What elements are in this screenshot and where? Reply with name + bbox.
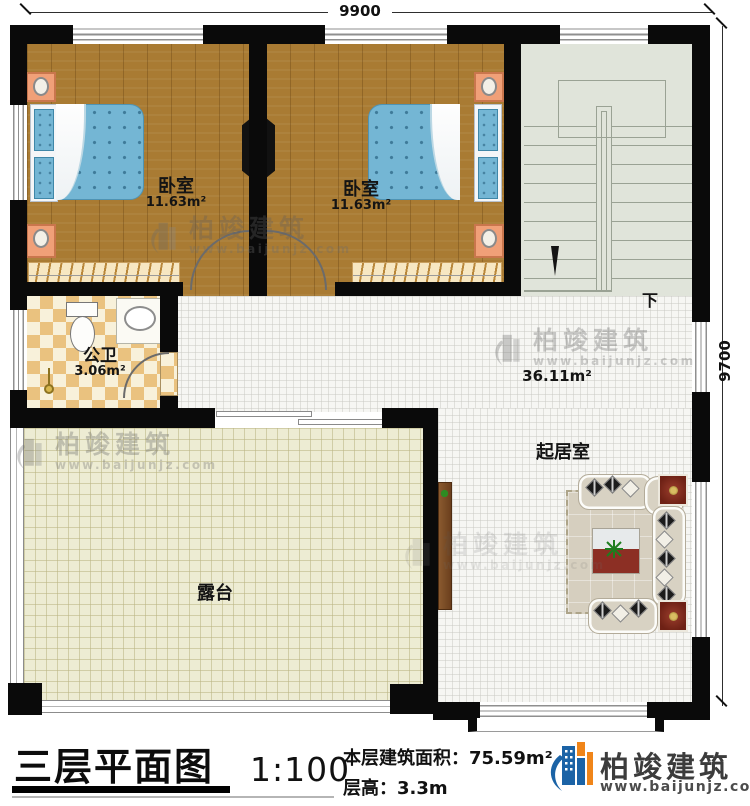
room-area-living: 36.11m² <box>517 368 597 385</box>
drawing-title: 三层平面图 <box>14 736 214 791</box>
terrace-railing-bottom <box>42 700 390 713</box>
terrace-corner-column <box>390 684 438 714</box>
room-area-bedroom-right: 11.63m² <box>325 199 397 214</box>
stair-bottom-edge <box>524 290 612 292</box>
sink-basin-icon <box>124 306 156 331</box>
plant-icon <box>604 539 624 559</box>
stair-steps-right <box>612 126 692 292</box>
title-underline-thin <box>12 796 334 798</box>
wall-terrace-right <box>423 428 438 686</box>
plant-icon <box>440 489 449 498</box>
right-dimension-label: 9700 <box>716 336 734 386</box>
bed-pillow <box>478 157 498 199</box>
stair-rail-inner <box>601 111 607 292</box>
lamp-icon <box>33 77 49 96</box>
window <box>10 310 27 390</box>
lamp-icon <box>33 229 49 248</box>
brand-logo-icon <box>546 740 596 794</box>
nightstand <box>474 72 504 102</box>
wall-terrace-top-right <box>382 408 438 428</box>
wall-between-bedrooms <box>249 44 267 296</box>
floor-drain-stem <box>48 368 50 385</box>
brand-website: www.baijunjz.com <box>600 779 750 795</box>
stair-steps-left <box>524 126 596 292</box>
side-table <box>658 474 688 506</box>
floor-drain-icon <box>44 384 54 394</box>
wall-bedroom-stairs <box>504 44 521 296</box>
toilet-icon <box>66 302 98 317</box>
sliding-door-panel <box>216 411 312 417</box>
window <box>73 25 203 44</box>
window <box>560 25 648 44</box>
nightstand <box>26 72 56 102</box>
plant-icon <box>604 539 624 559</box>
dimension-tick <box>19 3 31 15</box>
tv-cabinet <box>438 482 452 610</box>
wall-door-stub <box>250 282 267 296</box>
floor-height-text: 层高：3.3m <box>343 774 448 800</box>
brand-logo-icon <box>546 740 596 794</box>
window <box>692 322 710 392</box>
room-label-terrace: 露台 <box>180 584 250 605</box>
bed-pillow <box>34 157 54 199</box>
drawing-scale: 1:100 <box>250 750 350 789</box>
top-dimension-label: 9900 <box>328 2 392 20</box>
table-medallion <box>669 486 678 495</box>
floor-area-text: 本层建筑面积：75.59m² <box>343 744 553 770</box>
wall-bathroom-terrace <box>10 408 215 428</box>
terrace-railing-left <box>10 428 24 683</box>
dimension-tick <box>703 3 715 15</box>
side-table <box>658 600 688 632</box>
tv-icon <box>266 118 275 178</box>
lamp-icon <box>481 229 497 248</box>
wall-under-bedroom-left <box>10 282 183 296</box>
nightstand <box>26 224 56 258</box>
stair-down-arrow <box>551 246 559 276</box>
terrace-floor <box>24 428 438 702</box>
nightstand <box>474 224 504 258</box>
bed-pillow <box>34 109 54 151</box>
window <box>692 482 710 637</box>
sliding-door-panel <box>298 419 386 425</box>
window <box>325 25 447 44</box>
room-area-bathroom: 3.06m² <box>52 365 148 380</box>
living-room-floor-upper <box>160 296 692 412</box>
wall-bathroom-right <box>160 296 178 352</box>
window <box>10 105 27 200</box>
floor-plan-page: 9900 9700 <box>0 0 750 806</box>
table-medallion <box>669 612 678 621</box>
room-label-living: 起居室 <box>523 443 603 464</box>
terrace-corner-column <box>8 683 42 715</box>
room-area-bedroom-left: 11.63m² <box>140 196 212 211</box>
bed-pillow <box>478 109 498 151</box>
title-underline <box>12 786 230 793</box>
window-sill <box>468 718 664 732</box>
wall-under-bedroom-right <box>335 282 506 296</box>
stairs-down-label: 下 <box>636 292 664 310</box>
lamp-icon <box>481 77 497 96</box>
